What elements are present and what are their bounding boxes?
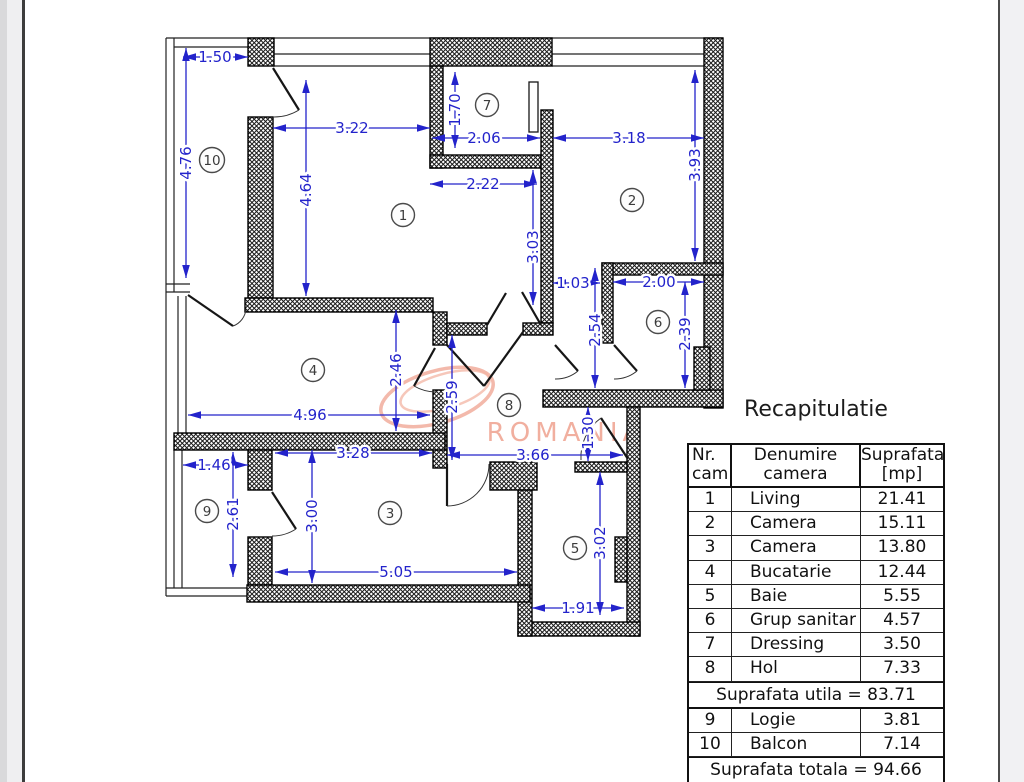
recap-header-name: Denumire camera [732, 445, 861, 486]
dimension-label: 4.64 [297, 173, 315, 206]
table-row: 4 Bucatarie 12.44 [689, 561, 943, 585]
room-number-label: 6 [654, 315, 663, 331]
room-number-label: 9 [203, 504, 212, 520]
total-row: Suprafata totala = 94.66 [689, 757, 943, 782]
watermark-text: ROMANIA [487, 418, 646, 448]
dimension-label: 1.50 [198, 48, 231, 66]
table-row: 5 Baie 5.55 [689, 585, 943, 609]
dimension-label: 3.66 [516, 446, 549, 464]
living-door-leaf [522, 292, 541, 325]
living-door-leaf [487, 293, 506, 325]
room-number-label: 7 [483, 98, 492, 114]
table-row: 1 Living 21.41 [689, 488, 943, 512]
table-row: 10 Balcon 7.14 [689, 733, 943, 757]
dimension-label: 3.28 [336, 444, 369, 462]
room-number-label: 8 [505, 398, 514, 414]
dimension-label: 2.54 [586, 313, 604, 346]
dimension-label: 4.76 [177, 146, 195, 179]
room-number-label: 10 [203, 153, 220, 169]
subtotal-row: Suprafata utila = 83.71 [689, 682, 943, 709]
dimension-label: 2.22 [466, 175, 499, 193]
table-row: 9 Logie 3.81 [689, 709, 943, 733]
page-left-edge-line [22, 0, 25, 782]
hall-door-leaf [484, 332, 523, 386]
dimension-label: 2.00 [642, 273, 675, 291]
table-row: 6 Grup sanitar 4.57 [689, 609, 943, 633]
dimension-label: 1.70 [446, 93, 464, 126]
loggia-door-leaf [272, 492, 296, 529]
dimension-label: 3.03 [524, 230, 542, 263]
dimension-label: 1.46 [197, 456, 230, 474]
recap-table: Nr. cam. Denumire camera Suprafata [mp] … [687, 443, 945, 782]
recap-header-area: Suprafata [mp] [861, 445, 943, 486]
dimension-label: 2.46 [387, 353, 405, 386]
room-number-label: 5 [571, 541, 580, 557]
camera2-door-leaf [555, 345, 578, 371]
page-left-margin [0, 0, 7, 782]
recap-header-row: Nr. cam. Denumire camera Suprafata [mp] [689, 445, 943, 488]
dimension-label: 4.96 [293, 406, 326, 424]
kitchen-balcony-door-leaf [188, 295, 233, 326]
dimension-label: 1.03 [556, 274, 589, 292]
table-row: 7 Dressing 3.50 [689, 633, 943, 657]
dimension-label: 3.02 [591, 526, 609, 559]
wc-door-leaf [614, 345, 637, 371]
dimension-label: 3.22 [335, 119, 368, 137]
page-left-margin-inner [7, 0, 22, 782]
room-number-label: 2 [628, 193, 637, 209]
recap-header-nr: Nr. cam. [689, 445, 732, 486]
balcony-door-leaf [273, 68, 299, 110]
table-row: 3 Camera 13.80 [689, 536, 943, 560]
room-number-label: 1 [399, 208, 408, 224]
table-row: 8 Hol 7.33 [689, 657, 943, 681]
scanned-floorplan-page: ROMANIA [0, 0, 1024, 782]
dressing-door-leaf [529, 82, 538, 132]
dimension-label: 3.18 [612, 129, 645, 147]
dimension-label: 3.00 [303, 499, 321, 532]
dimension-label: 2.06 [467, 129, 500, 147]
dimension-label: 5.05 [379, 563, 412, 581]
dimension-label: 2.39 [676, 317, 694, 350]
walls [174, 38, 723, 636]
room-number-label: 4 [309, 363, 318, 379]
dimension-label: 3.93 [686, 148, 704, 181]
dimension-label: 1.91 [561, 599, 594, 617]
dimension-label: 1.30 [579, 416, 597, 449]
recap-title: Recapitulatie [687, 397, 945, 422]
dimension-label: 2.59 [443, 380, 461, 413]
page-right-margin [1000, 0, 1024, 782]
table-row: 2 Camera 15.11 [689, 512, 943, 536]
dimension-label: 2.61 [224, 497, 242, 530]
room-number-label: 3 [386, 506, 395, 522]
